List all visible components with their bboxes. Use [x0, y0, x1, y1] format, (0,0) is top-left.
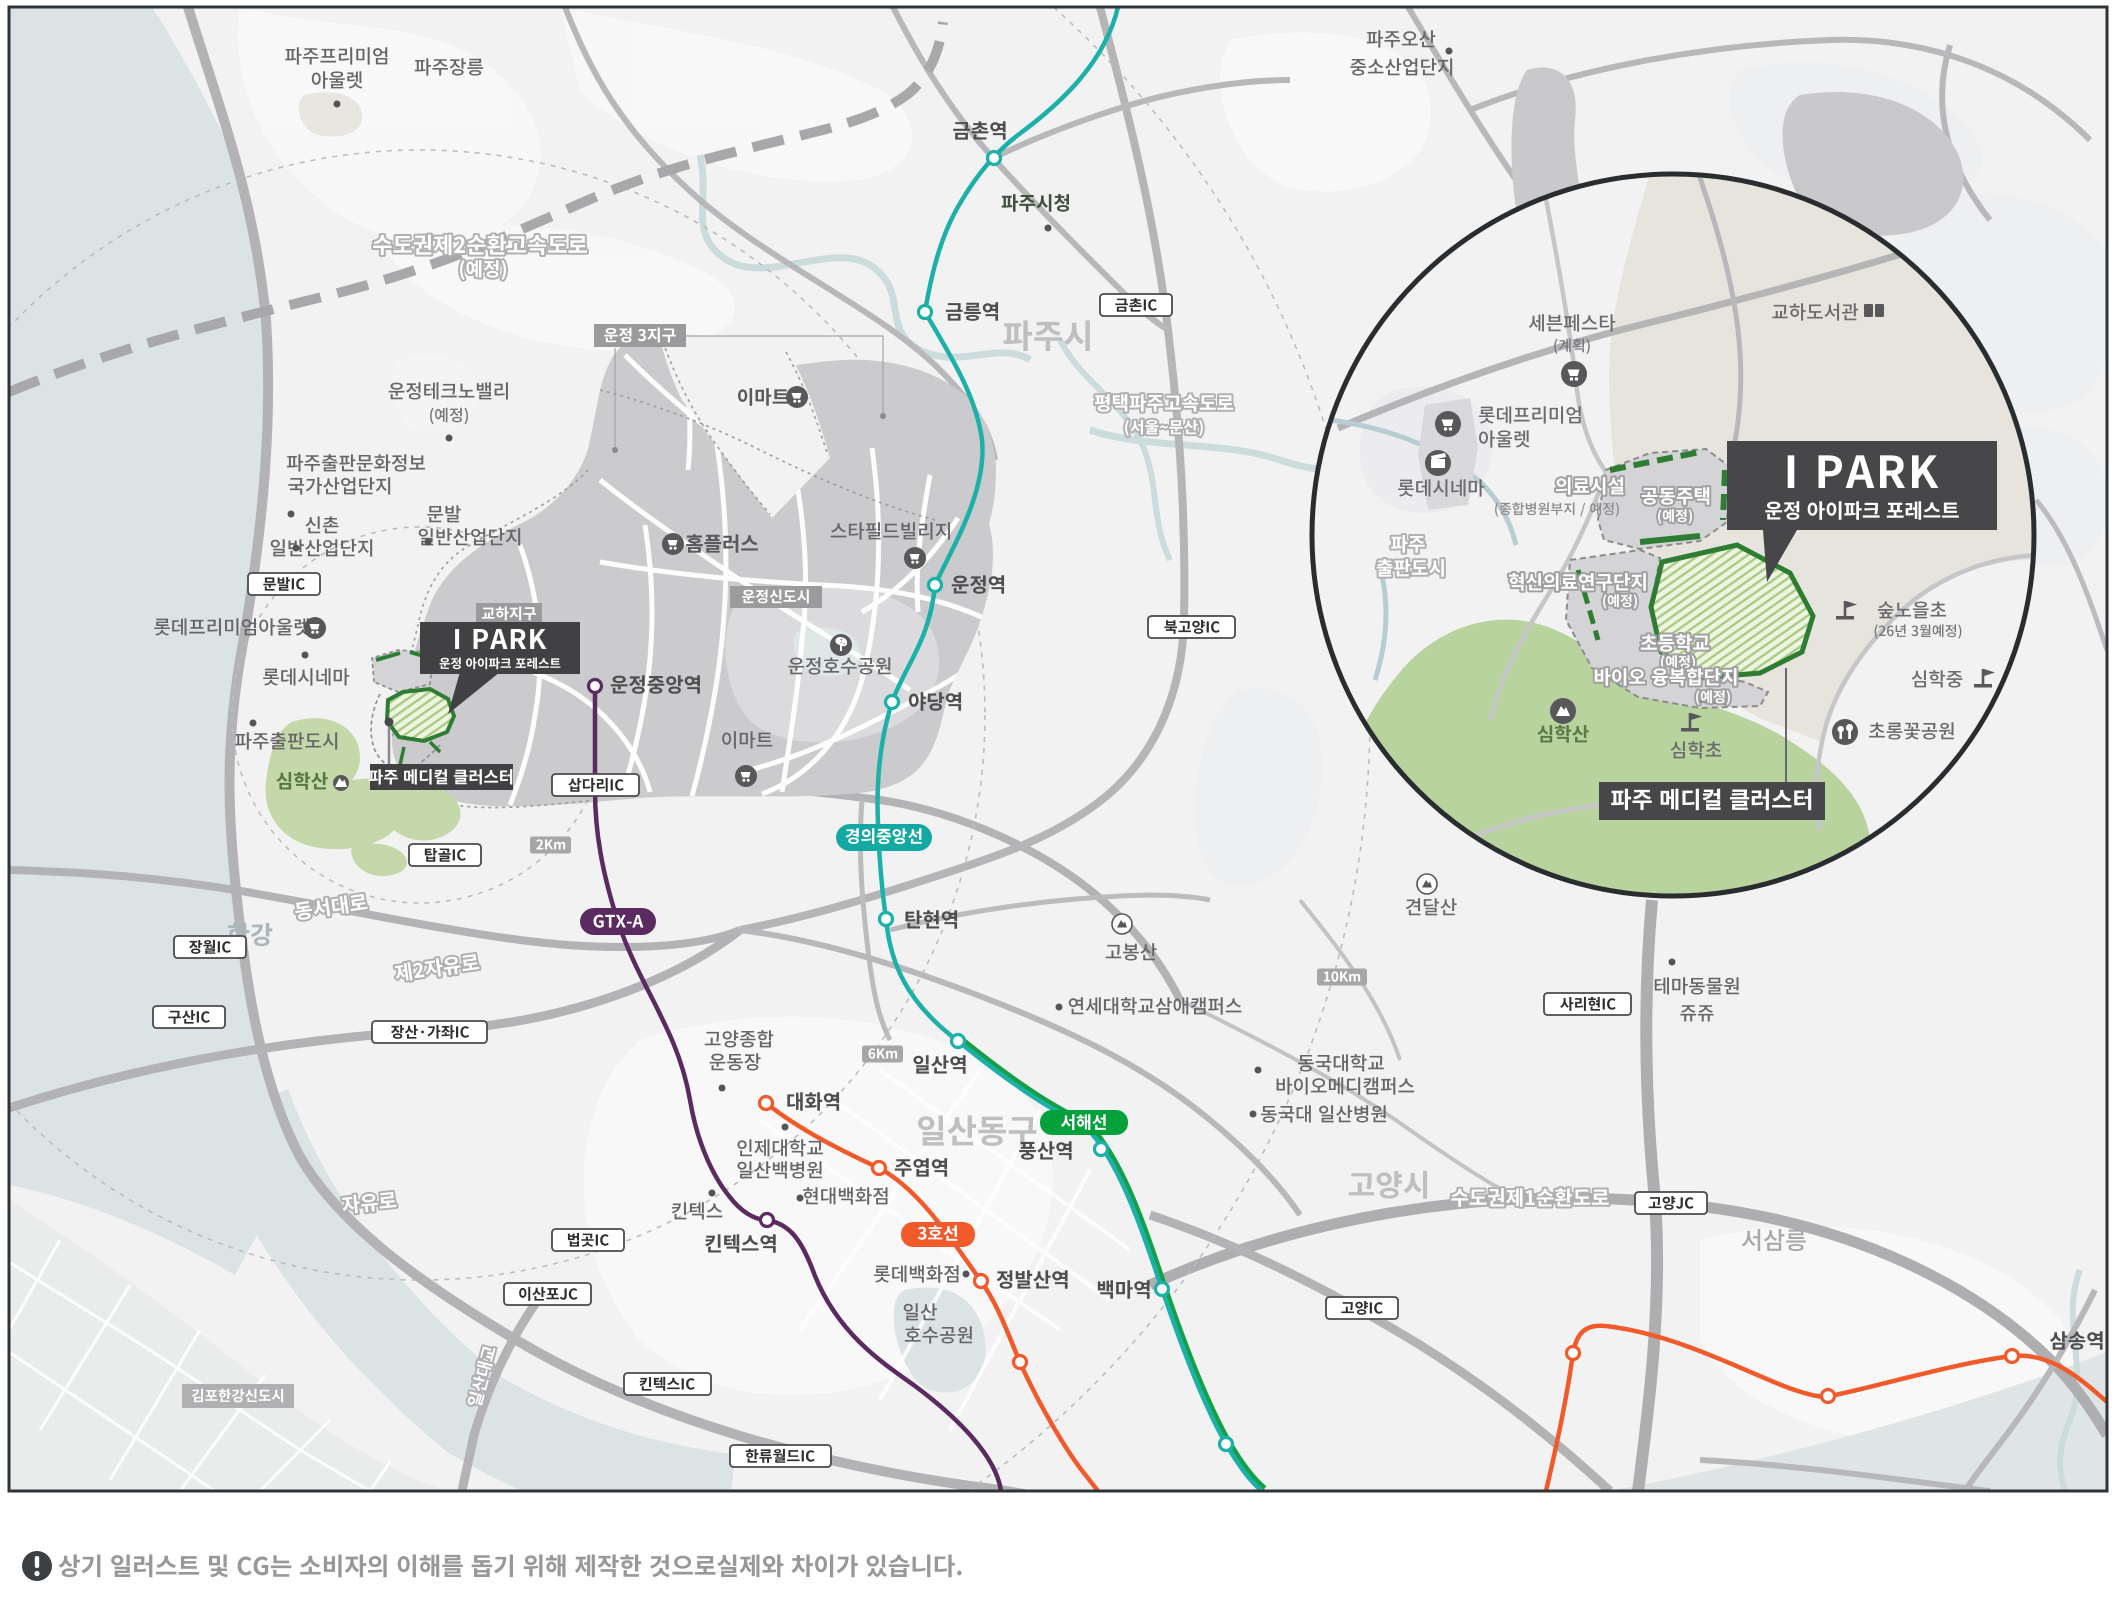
svg-text:운동장: 운동장: [709, 1048, 761, 1075]
svg-text:I PARK: I PARK: [1784, 437, 1941, 501]
svg-text:삽다리IC: 삽다리IC: [568, 775, 624, 796]
svg-text:2Km: 2Km: [536, 834, 566, 854]
svg-text:금촌IC: 금촌IC: [1115, 295, 1158, 316]
svg-text:롯데프리미엄: 롯데프리미엄: [1478, 401, 1583, 428]
svg-text:풍산역: 풍산역: [1018, 1135, 1073, 1164]
svg-text:탄현역: 탄현역: [904, 904, 959, 933]
svg-text:운정 3지구: 운정 3지구: [604, 322, 677, 346]
svg-text:스타필드빌리지: 스타필드빌리지: [830, 517, 952, 544]
svg-text:연세대학교삼애캠퍼스: 연세대학교삼애캠퍼스: [1068, 992, 1243, 1019]
svg-text:삼송역: 삼송역: [2049, 1325, 2104, 1354]
svg-text:파주시: 파주시: [1002, 310, 1093, 358]
svg-text:롯데시네마: 롯데시네마: [262, 663, 350, 690]
svg-text:출판도시: 출판도시: [1376, 554, 1446, 581]
svg-text:운정중앙역: 운정중앙역: [610, 669, 702, 698]
svg-text:장월IC: 장월IC: [189, 937, 232, 958]
svg-text:킨텍스역: 킨텍스역: [704, 1228, 778, 1257]
svg-text:교하도서관: 교하도서관: [1771, 298, 1858, 325]
svg-text:(예정): (예정): [458, 255, 507, 282]
svg-text:킨텍스: 킨텍스: [671, 1197, 723, 1224]
svg-text:고양JC: 고양JC: [1648, 1193, 1694, 1214]
svg-text:운정 아이파크 포레스트: 운정 아이파크 포레스트: [439, 653, 561, 672]
svg-text:구산IC: 구산IC: [168, 1007, 211, 1028]
svg-text:동국대 일산병원: 동국대 일산병원: [1260, 1100, 1388, 1127]
svg-text:킨텍스IC: 킨텍스IC: [639, 1374, 695, 1395]
svg-text:(예정): (예정): [429, 402, 470, 426]
svg-text:파주오산: 파주오산: [1366, 25, 1436, 52]
svg-text:호수공원: 호수공원: [904, 1321, 974, 1348]
svg-text:정발산역: 정발산역: [996, 1264, 1070, 1293]
svg-text:파주 메디컬 클러스터: 파주 메디컬 클러스터: [368, 764, 514, 788]
svg-text:숲노을초: 숲노을초: [1877, 596, 1947, 623]
svg-text:이산포JC: 이산포JC: [518, 1284, 578, 1305]
svg-text:GTX-A: GTX-A: [593, 908, 644, 933]
svg-text:평택파주고속도로: 평택파주고속도로: [1094, 389, 1234, 416]
svg-text:고봉산: 고봉산: [1105, 938, 1157, 965]
svg-text:상기 일러스트 및 CG는 소비자의 이해를 돕기 위해 제: 상기 일러스트 및 CG는 소비자의 이해를 돕기 위해 제작한 것으로실제와 …: [58, 1548, 963, 1583]
svg-text:야당역: 야당역: [908, 686, 963, 715]
svg-text:(예정): (예정): [1657, 506, 1693, 526]
svg-text:일반산업단지: 일반산업단지: [418, 523, 523, 550]
svg-text:심학산: 심학산: [276, 767, 328, 794]
svg-text:(26년 3월예정): (26년 3월예정): [1873, 621, 1962, 641]
svg-text:수도권제1순환도로: 수도권제1순환도로: [1451, 1182, 1610, 1211]
svg-text:파주장릉: 파주장릉: [414, 53, 484, 80]
svg-text:파주: 파주: [1391, 530, 1426, 557]
svg-text:대화역: 대화역: [786, 1086, 841, 1115]
svg-text:문발IC: 문발IC: [263, 574, 306, 595]
svg-text:장산·가좌IC: 장산·가좌IC: [391, 1022, 470, 1043]
svg-text:운정호수공원: 운정호수공원: [788, 652, 893, 679]
svg-text:심학산: 심학산: [1537, 720, 1589, 747]
svg-text:(서울~문산): (서울~문산): [1124, 414, 1204, 438]
svg-text:북고양IC: 북고양IC: [1164, 617, 1220, 638]
svg-text:백마역: 백마역: [1096, 1274, 1151, 1303]
svg-text:탑골IC: 탑골IC: [424, 845, 467, 866]
svg-text:경의중앙선: 경의중앙선: [845, 823, 923, 848]
svg-text:파주출판도시: 파주출판도시: [235, 727, 340, 754]
svg-text:파주프리미엄: 파주프리미엄: [285, 42, 390, 69]
svg-text:사리현IC: 사리현IC: [1560, 994, 1616, 1015]
svg-text:일산백병원: 일산백병원: [736, 1156, 823, 1183]
svg-text:자유로: 자유로: [340, 1184, 398, 1219]
svg-text:롯데시네마: 롯데시네마: [1397, 474, 1485, 501]
svg-text:이마트: 이마트: [721, 726, 773, 753]
svg-text:(예정): (예정): [1602, 591, 1638, 611]
svg-text:금촌역: 금촌역: [952, 115, 1007, 144]
svg-text:아울렛: 아울렛: [311, 66, 363, 93]
svg-text:(종합병원부지 / 예정): (종합병원부지 / 예정): [1494, 499, 1620, 519]
svg-text:주엽역: 주엽역: [894, 1152, 949, 1181]
svg-text:의료시설: 의료시설: [1555, 472, 1625, 499]
svg-text:(예정): (예정): [1695, 687, 1731, 707]
svg-text:중소산업단지: 중소산업단지: [1350, 53, 1455, 80]
svg-text:바이오 융복합단지: 바이오 융복합단지: [1593, 663, 1738, 690]
svg-text:현대백화점: 현대백화점: [802, 1182, 889, 1209]
svg-text:파주 메디컬 클러스터: 파주 메디컬 클러스터: [1610, 781, 1813, 815]
svg-text:금릉역: 금릉역: [945, 296, 1000, 325]
svg-text:운정테크노밸리: 운정테크노밸리: [388, 377, 510, 404]
svg-text:일반산업단지: 일반산업단지: [270, 534, 375, 561]
svg-text:운정 아이파크 포레스트: 운정 아이파크 포레스트: [1764, 495, 1959, 524]
svg-text:6Km: 6Km: [868, 1043, 898, 1063]
svg-text:테마동물원: 테마동물원: [1653, 972, 1740, 999]
svg-text:파주시청: 파주시청: [1001, 189, 1071, 216]
svg-text:서삼릉: 서삼릉: [1741, 1221, 1807, 1256]
svg-text:법곳IC: 법곳IC: [567, 1230, 610, 1251]
svg-text:10Km: 10Km: [1323, 966, 1361, 986]
svg-text:국가산업단지: 국가산업단지: [288, 472, 393, 499]
svg-text:한류월드IC: 한류월드IC: [745, 1446, 815, 1467]
svg-text:(계획): (계획): [1553, 335, 1591, 356]
svg-text:운정신도시: 운정신도시: [741, 586, 810, 607]
svg-text:홈플러스: 홈플러스: [685, 528, 759, 557]
svg-text:초롱꽃공원: 초롱꽃공원: [1868, 717, 1955, 744]
svg-text:김포한강신도시: 김포한강신도시: [191, 1385, 284, 1406]
svg-text:공동주택: 공동주택: [1641, 482, 1711, 509]
svg-text:서해선: 서해선: [1061, 1109, 1108, 1134]
svg-text:바이오메디캠퍼스: 바이오메디캠퍼스: [1275, 1072, 1415, 1099]
svg-text:아울렛: 아울렛: [1478, 425, 1530, 452]
svg-text:심학중: 심학중: [1911, 665, 1963, 692]
svg-text:3호선: 3호선: [917, 1220, 958, 1245]
svg-text:운정역: 운정역: [951, 569, 1006, 598]
svg-text:견달산: 견달산: [1405, 893, 1457, 920]
svg-text:심학초: 심학초: [1670, 736, 1722, 763]
svg-text:이마트: 이마트: [737, 383, 789, 410]
svg-text:일산역: 일산역: [912, 1049, 967, 1078]
svg-text:쥬쥬: 쥬쥬: [1680, 999, 1715, 1026]
svg-text:세븐페스타: 세븐페스타: [1528, 309, 1616, 336]
svg-text:고양시: 고양시: [1348, 1161, 1431, 1205]
svg-text:롯데프리미엄아울렛: 롯데프리미엄아울렛: [153, 613, 310, 640]
svg-text:고양IC: 고양IC: [1341, 1298, 1384, 1319]
svg-text:I PARK: I PARK: [453, 618, 548, 657]
svg-text:롯데백화점: 롯데백화점: [873, 1260, 960, 1287]
